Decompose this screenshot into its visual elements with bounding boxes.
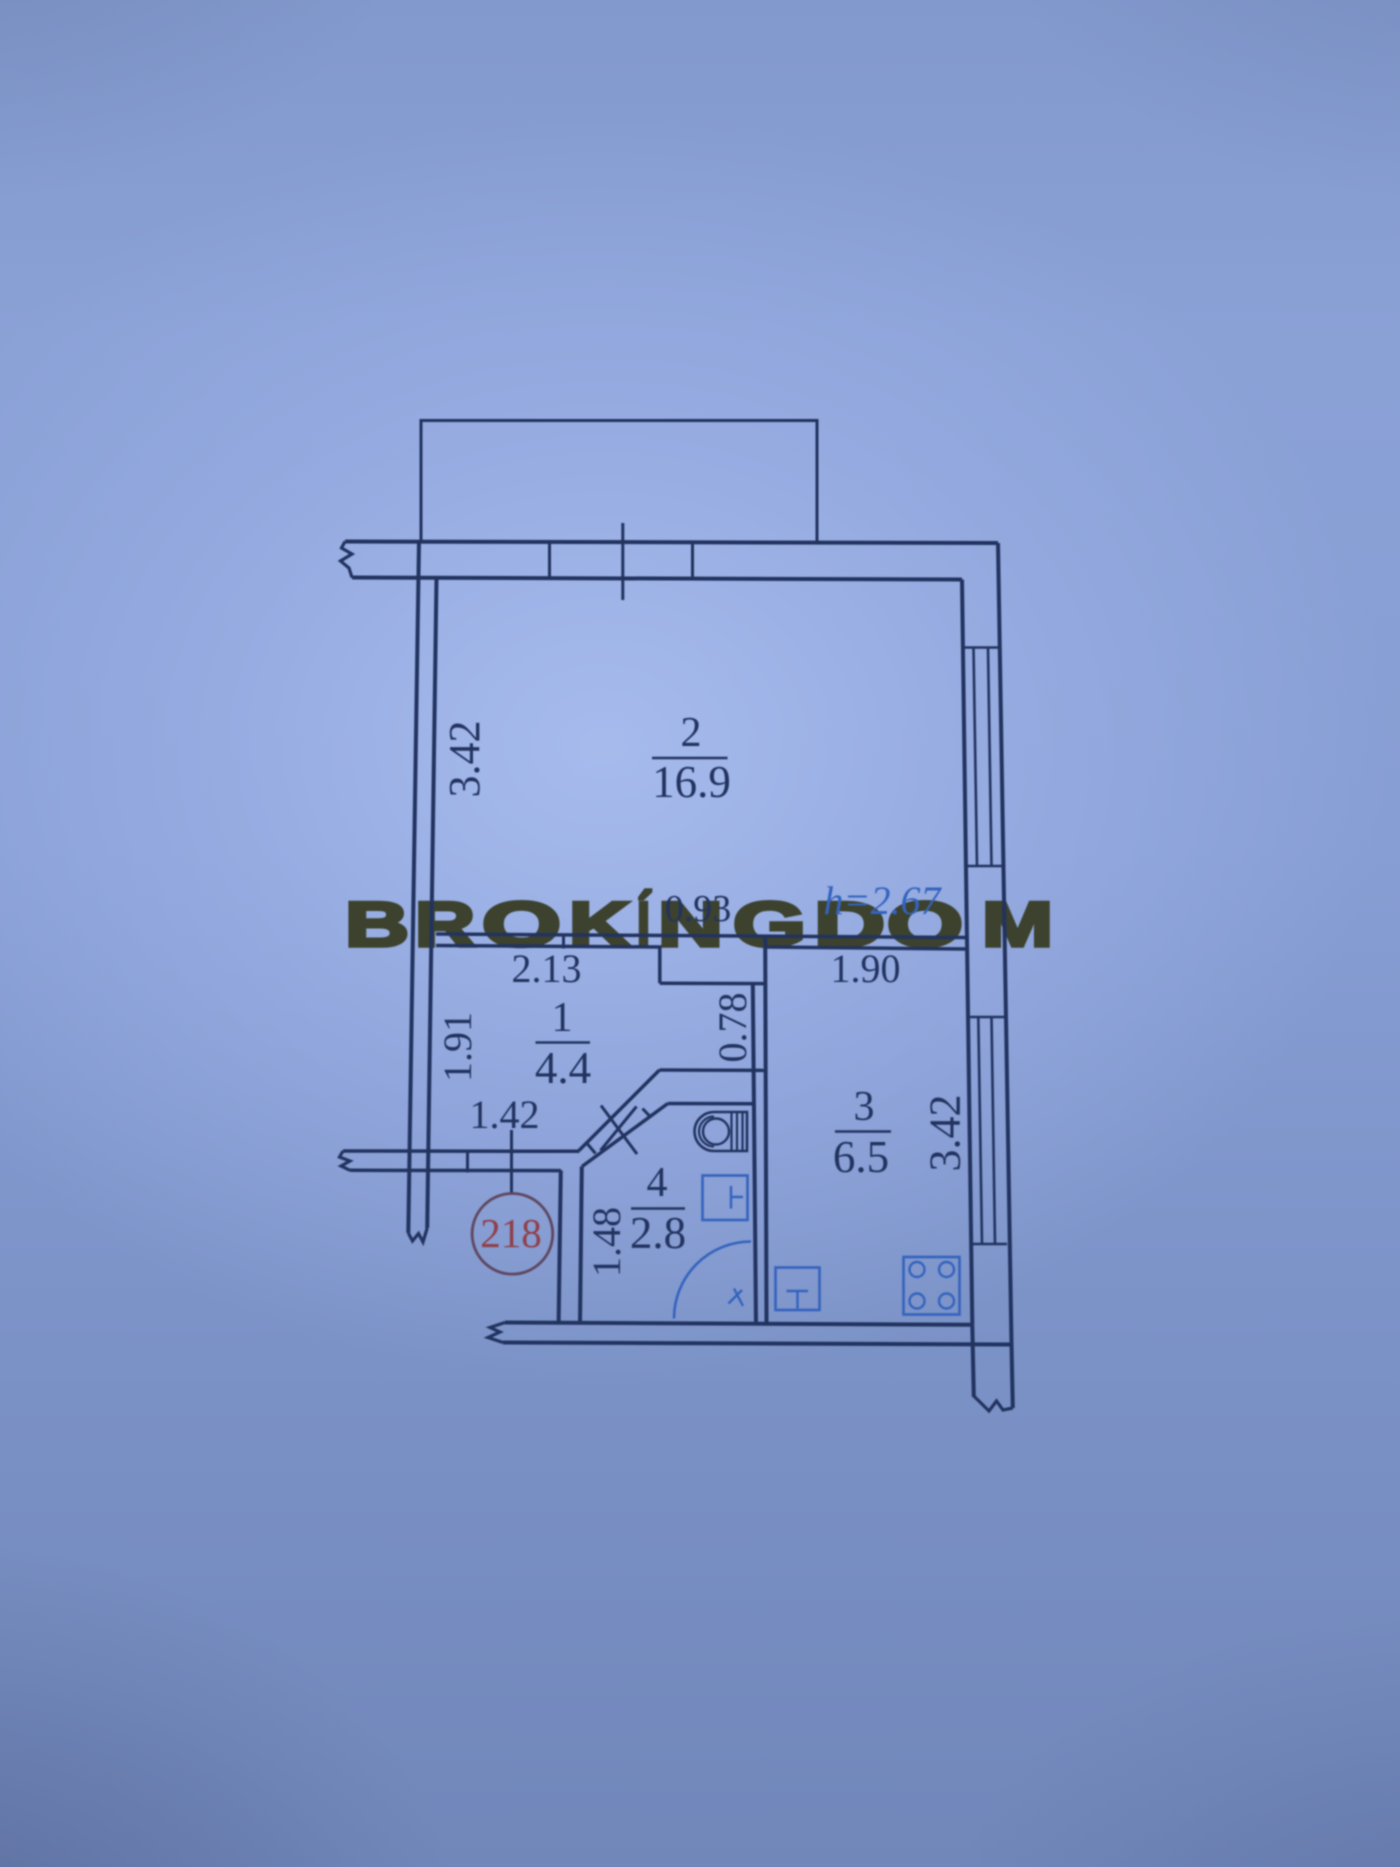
svg-text:3.42: 3.42 [440,721,489,798]
svg-text:Í: Í [637,890,651,960]
svg-text:1.90: 1.90 [831,946,901,991]
svg-text:G: G [733,890,806,960]
svg-text:0.78: 0.78 [710,993,755,1063]
svg-text:6.5: 6.5 [833,1132,889,1182]
svg-text:0.93: 0.93 [665,888,732,930]
svg-text:2.8: 2.8 [630,1208,686,1258]
svg-text:3.42: 3.42 [921,1095,970,1172]
svg-text:218: 218 [480,1210,542,1256]
svg-text:4.4: 4.4 [535,1043,591,1093]
svg-text:h=2.67: h=2.67 [824,878,943,923]
svg-text:2: 2 [681,710,702,756]
svg-text:1.91: 1.91 [435,1012,480,1082]
svg-text:B: B [345,890,409,960]
svg-text:R: R [415,890,475,960]
svg-text:16.9: 16.9 [652,757,731,807]
svg-text:M: M [982,890,1053,960]
svg-text:2.13: 2.13 [512,946,582,991]
svg-text:1: 1 [552,995,573,1041]
svg-text:1.48: 1.48 [584,1207,629,1277]
svg-text:3: 3 [854,1084,875,1130]
svg-text:4: 4 [647,1160,668,1206]
svg-text:1.42: 1.42 [470,1092,540,1137]
